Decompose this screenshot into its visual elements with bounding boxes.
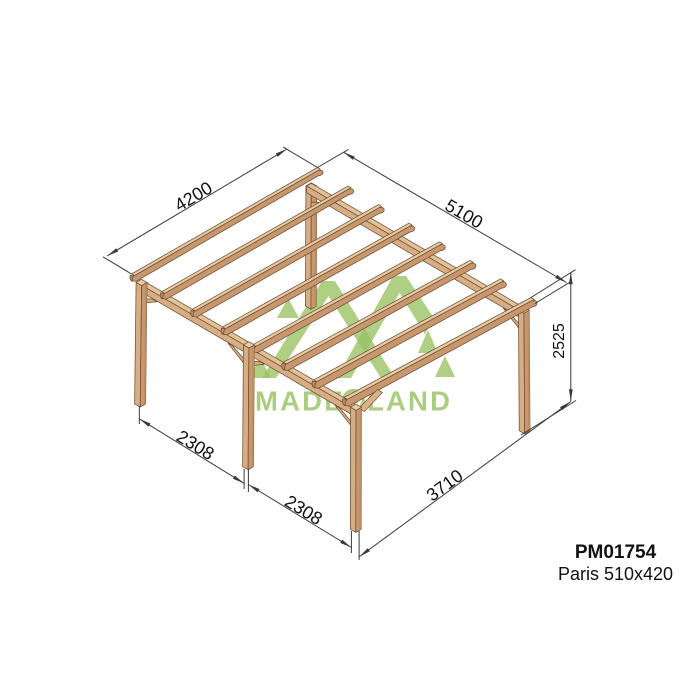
svg-text:LAND: LAND (367, 386, 452, 417)
svg-text:2525: 2525 (551, 323, 568, 359)
svg-text:Paris 510x420: Paris 510x420 (558, 564, 673, 584)
svg-text:PM01754: PM01754 (575, 542, 657, 563)
